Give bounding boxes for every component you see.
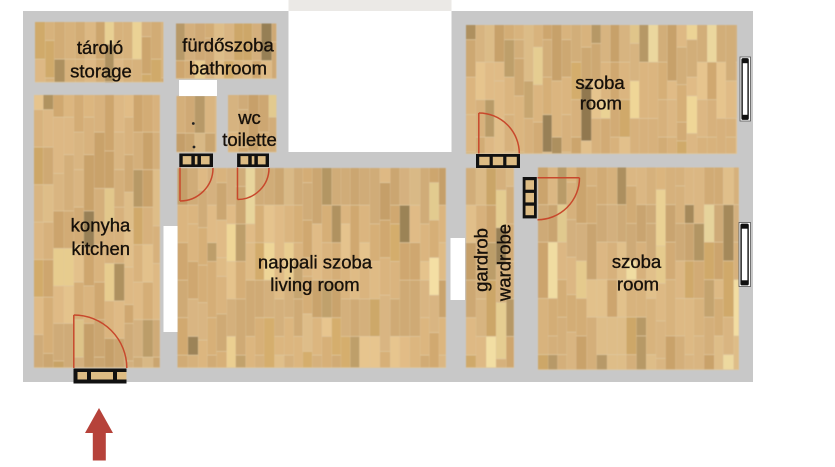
svg-text:gardrob: gardrob bbox=[471, 228, 492, 292]
svg-text:kitchen: kitchen bbox=[71, 238, 130, 259]
svg-text:storage: storage bbox=[70, 61, 132, 82]
svg-text:room: room bbox=[580, 93, 622, 114]
svg-text:living room: living room bbox=[270, 274, 359, 295]
svg-text:tároló: tároló bbox=[77, 37, 123, 58]
svg-text:szoba: szoba bbox=[575, 72, 625, 93]
svg-text:fürdőszoba: fürdőszoba bbox=[182, 35, 274, 56]
svg-text:toilette: toilette bbox=[222, 129, 277, 150]
svg-text:szoba: szoba bbox=[612, 251, 662, 272]
svg-text:bathroom: bathroom bbox=[189, 58, 267, 79]
svg-text:nappali szoba: nappali szoba bbox=[258, 252, 373, 273]
svg-text:wc: wc bbox=[237, 107, 261, 128]
svg-text:konyha: konyha bbox=[71, 215, 131, 236]
svg-text:wardrobe: wardrobe bbox=[494, 224, 515, 302]
svg-text:room: room bbox=[617, 274, 659, 295]
